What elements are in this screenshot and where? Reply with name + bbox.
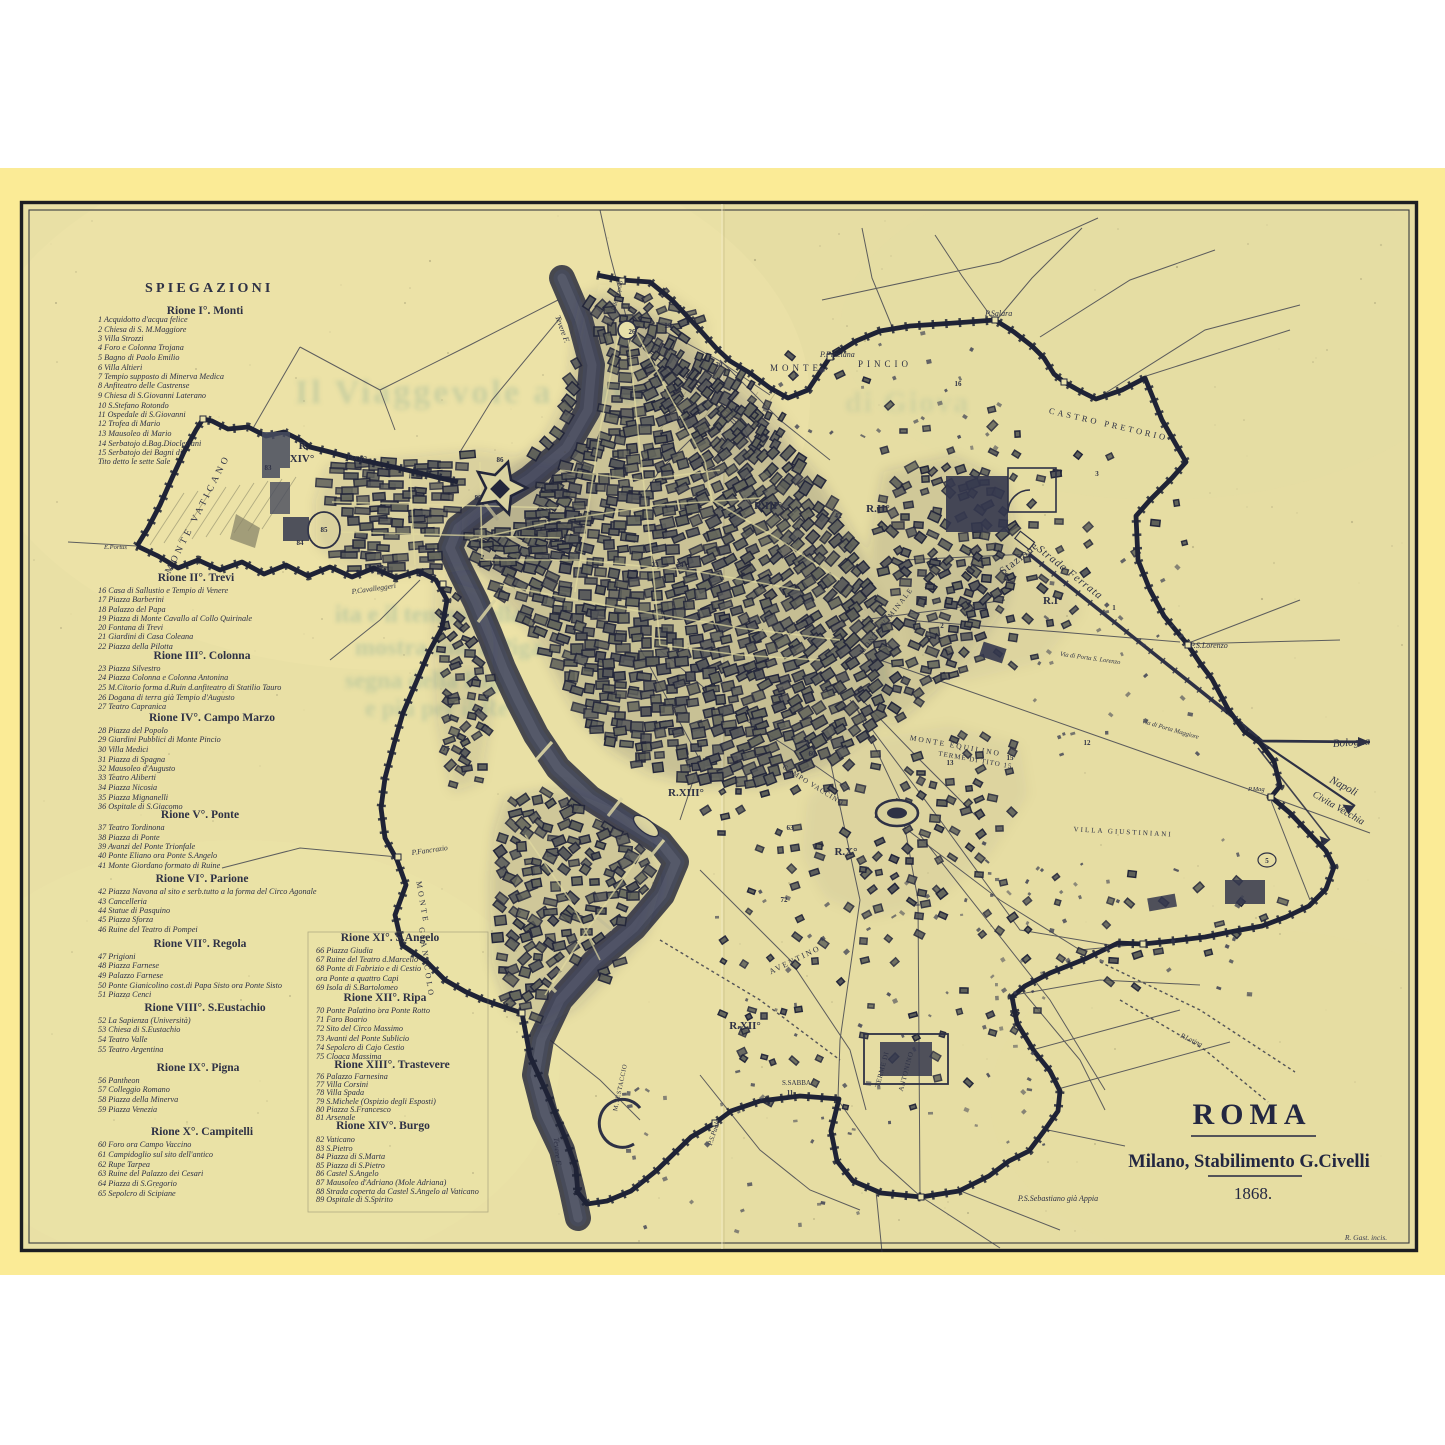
svg-text:41 Monte Giordano formato di R: 41 Monte Giordano formato di Ruine (98, 861, 221, 870)
svg-text:65 Sepolcro di Scipiane: 65 Sepolcro di Scipiane (98, 1189, 176, 1198)
svg-text:50 Ponte Gianicolino cost.di P: 50 Ponte Gianicolino cost.di Papa Sisto … (98, 981, 282, 990)
svg-text:13 Mausoleo di Mario: 13 Mausoleo di Mario (98, 429, 171, 438)
svg-text:84: 84 (297, 539, 305, 547)
svg-text:E.Portus: E.Portus (103, 544, 127, 551)
svg-text:48 Piazza Farnese: 48 Piazza Farnese (98, 961, 159, 970)
svg-text:23 Piazza Silvestro: 23 Piazza Silvestro (98, 664, 160, 673)
svg-text:4 Foro e Colonna Trojana: 4 Foro e Colonna Trojana (98, 343, 184, 352)
svg-text:38 Piazza di Ponte: 38 Piazza di Ponte (97, 833, 160, 842)
svg-text:12: 12 (1084, 739, 1092, 747)
svg-text:37 Teatro Tordinona: 37 Teatro Tordinona (97, 823, 165, 832)
svg-text:87 Mausoleo d'Adriano (Mole Ad: 87 Mausoleo d'Adriano (Mole Adriana) (316, 1178, 447, 1187)
svg-text:61 Campidoglio sul sito dell'a: 61 Campidoglio sul sito dell'antico (98, 1150, 213, 1159)
svg-text:78 Villa Spada: 78 Villa Spada (316, 1088, 364, 1097)
svg-text:88: 88 (475, 494, 483, 502)
svg-text:42 Piazza Navona al sito e ser: 42 Piazza Navona al sito e serb.tutto a … (98, 887, 317, 896)
svg-text:Borgo: Borgo (347, 453, 367, 462)
svg-text:85: 85 (321, 526, 329, 534)
svg-text:86: 86 (497, 456, 505, 464)
svg-text:45 Piazza Sforza: 45 Piazza Sforza (98, 915, 153, 924)
svg-text:P.S.Lorenzo: P.S.Lorenzo (1189, 641, 1228, 650)
svg-text:2: 2 (940, 622, 944, 630)
svg-text:31 Piazza di Spagna: 31 Piazza di Spagna (97, 755, 165, 764)
svg-text:25 M.Citorio forma d.Ruin d.an: 25 M.Citorio forma d.Ruin d.anfiteatro d… (98, 683, 281, 692)
svg-text:Rione IX°. Pigna: Rione IX°. Pigna (157, 1062, 240, 1074)
svg-text:MONTE: MONTE (770, 363, 822, 373)
svg-text:57 Colleggio Romano: 57 Colleggio Romano (98, 1085, 170, 1094)
svg-text:Rione VII°. Regola: Rione VII°. Regola (154, 938, 247, 950)
svg-text:63: 63 (787, 824, 795, 832)
svg-text:2 Chiesa di S. M.Maggiore: 2 Chiesa di S. M.Maggiore (98, 325, 187, 334)
svg-text:R.I°: R.I° (1043, 595, 1062, 607)
svg-text:26 Dogana di terra già Tempio: 26 Dogana di terra già Tempio d'Augusto (98, 693, 235, 702)
svg-text:Rione II°. Trevi: Rione II°. Trevi (158, 572, 235, 584)
svg-text:89 Ospitale di S.Spirito: 89 Ospitale di S.Spirito (316, 1195, 393, 1204)
svg-text:43 Cancelleria: 43 Cancelleria (98, 897, 147, 906)
svg-text:69 Isola di S.Bartolomeo: 69 Isola di S.Bartolomeo (316, 983, 398, 992)
svg-text:73 Avanti del Ponte Sublicio: 73 Avanti del Ponte Sublicio (316, 1034, 409, 1043)
svg-text:39 Avanzi del Ponte Trionfale: 39 Avanzi del Ponte Trionfale (97, 842, 196, 851)
svg-text:82 Vaticano: 82 Vaticano (316, 1135, 355, 1144)
svg-text:33 Teatro Aliberti: 33 Teatro Aliberti (97, 773, 157, 782)
svg-text:PINCIO: PINCIO (858, 359, 912, 369)
svg-text:35 Piazza Mignanelli: 35 Piazza Mignanelli (97, 793, 169, 802)
svg-text:28 Piazza del Popolo: 28 Piazza del Popolo (98, 726, 168, 735)
svg-text:S.SABBA: S.SABBA (782, 1079, 811, 1087)
svg-text:24: 24 (677, 561, 685, 569)
svg-text:59 Piazza Venezia: 59 Piazza Venezia (98, 1105, 157, 1114)
svg-text:60 Foro ora Campo Vaccino: 60 Foro ora Campo Vaccino (98, 1140, 191, 1149)
svg-text:Rione III°. Colonna: Rione III°. Colonna (154, 650, 251, 662)
svg-text:13: 13 (947, 759, 955, 767)
svg-text:Rione XII°. Ripa: Rione XII°. Ripa (344, 992, 427, 1004)
svg-text:Tito detto le sette Sale: Tito detto le sette Sale (98, 457, 171, 466)
svg-text:26: 26 (629, 328, 637, 336)
svg-text:29 Giardini Pubblici di Monte: 29 Giardini Pubblici di Monte Pincio (98, 735, 221, 744)
svg-text:15: 15 (1007, 754, 1015, 762)
svg-text:70 Ponte Palatino ora Ponte Ro: 70 Ponte Palatino ora Ponte Rotto (316, 1006, 430, 1015)
svg-text:30: 30 (716, 361, 724, 369)
svg-text:Rione XI°. S.Angelo: Rione XI°. S.Angelo (341, 932, 440, 944)
svg-text:1: 1 (1112, 604, 1116, 612)
svg-text:58 Piazza della Minerva: 58 Piazza della Minerva (98, 1095, 178, 1104)
svg-text:3 Villa Strozzi: 3 Villa Strozzi (97, 334, 144, 343)
svg-text:1 Acquidotto d'acqua felice: 1 Acquidotto d'acqua felice (98, 315, 188, 324)
svg-text:XIV°: XIV° (290, 453, 315, 465)
svg-text:16 Casa di Sallustio e Tempio: 16 Casa di Sallustio e Tempio di Venere (98, 586, 229, 595)
svg-text:21 Giardini di Casa Coleana: 21 Giardini di Casa Coleana (98, 632, 193, 641)
svg-text:8 Anfiteatro delle Castrense: 8 Anfiteatro delle Castrense (98, 381, 190, 390)
svg-text:24 Piazza Colonna e Colonna An: 24 Piazza Colonna e Colonna Antonina (98, 673, 228, 682)
svg-text:64 Piazza di S.Gregorio: 64 Piazza di S.Gregorio (98, 1179, 177, 1188)
svg-text:83: 83 (265, 464, 273, 472)
svg-text:60: 60 (809, 750, 817, 758)
svg-text:46 Ruine del Teatro di Pompei: 46 Ruine del Teatro di Pompei (98, 925, 198, 934)
svg-text:Rione VI°. Parione: Rione VI°. Parione (156, 873, 249, 885)
svg-text:5: 5 (1265, 857, 1269, 865)
svg-text:P.Salara: P.Salara (984, 309, 1012, 318)
svg-text:11 Ospedale di S.Giovanni: 11 Ospedale di S.Giovanni (98, 410, 186, 419)
svg-text:19 Piazza di Monte Cavallo al: 19 Piazza di Monte Cavallo al Collo Quir… (98, 614, 252, 623)
svg-text:16: 16 (955, 380, 963, 388)
svg-text:5 Bagno di Paolo Emilio: 5 Bagno di Paolo Emilio (98, 353, 179, 362)
svg-text:29: 29 (665, 322, 673, 330)
svg-text:Rione VIII°. S.Eustachio: Rione VIII°. S.Eustachio (144, 1002, 266, 1014)
svg-text:54 Teatro Valle: 54 Teatro Valle (98, 1035, 148, 1044)
svg-text:9 Chiesa di S.Giovanni Lateran: 9 Chiesa di S.Giovanni Laterano (98, 391, 206, 400)
svg-text:56 Pantheon: 56 Pantheon (98, 1076, 140, 1085)
svg-text:P.Mag: P.Mag (1247, 786, 1265, 793)
svg-text:52 La Sapienza (Università): 52 La Sapienza (Università) (98, 1016, 191, 1025)
svg-text:10 S.Stefano Rotond: 10 S.Stefano Rotondo (98, 401, 169, 410)
svg-text:57: 57 (377, 564, 385, 572)
svg-text:63 Ruine del Palazzo dei Cesar: 63 Ruine del Palazzo dei Cesari (98, 1169, 204, 1178)
svg-text:34 Piazza Nicosia: 34 Piazza Nicosia (97, 783, 157, 792)
svg-text:P.S.Sebastiano già Appia: P.S.Sebastiano già Appia (1017, 1194, 1098, 1203)
svg-text:SPIEGAZIONI: SPIEGAZIONI (145, 281, 274, 296)
svg-text:6 Villa Altieri: 6 Villa Altieri (98, 363, 143, 372)
svg-text:Milano, Stabilimento G.Civelli: Milano, Stabilimento G.Civelli (1128, 1152, 1370, 1172)
svg-text:62 Rupe Tarpea: 62 Rupe Tarpea (98, 1160, 150, 1169)
svg-text:R.III°: R.III° (754, 500, 782, 512)
svg-text:23: 23 (652, 561, 660, 569)
svg-text:R.XII°: R.XII° (729, 1020, 761, 1032)
svg-text:77: 77 (443, 745, 451, 753)
svg-text:44 Statue di Pasquino: 44 Statue di Pasquino (98, 906, 170, 915)
svg-text:15 Serbatojo dei Bagni di: 15 Serbatojo dei Bagni di (98, 448, 183, 457)
svg-text:Rione XIV°. Burgo: Rione XIV°. Burgo (336, 1120, 430, 1132)
svg-text:Rione V°. Ponte: Rione V°. Ponte (161, 809, 239, 821)
svg-text:27 Teatro Capranica: 27 Teatro Capranica (98, 702, 166, 711)
svg-text:R.: R. (299, 440, 310, 452)
svg-text:68 Ponte di Fabrizio e di Cest: 68 Ponte di Fabrizio e di Cestio (316, 964, 421, 973)
svg-text:7 Tempio supposto di Minerva M: 7 Tempio supposto di Minerva Medica (98, 372, 224, 381)
svg-text:66 Piazza Giudia: 66 Piazza Giudia (316, 946, 373, 955)
svg-text:30 Villa Medici: 30 Villa Medici (97, 745, 149, 754)
svg-text:1868.: 1868. (1234, 1184, 1272, 1203)
svg-text:3: 3 (1095, 470, 1099, 478)
svg-text:32 Mausoleo d'Augusto: 32 Mausoleo d'Augusto (97, 764, 175, 773)
svg-text:Rione XIII°. Trastevere: Rione XIII°. Trastevere (334, 1059, 449, 1071)
svg-text:ora Ponte a quattro Capi: ora Ponte a quattro Capi (316, 974, 399, 983)
svg-text:55 Teatro Argentina: 55 Teatro Argentina (98, 1045, 163, 1054)
svg-text:ROMA: ROMA (1193, 1098, 1312, 1131)
svg-text:14 Serbatojo d.Bag.Diocleziani: 14 Serbatojo d.Bag.Diocleziani (98, 439, 202, 448)
svg-text:R.XIII°: R.XIII° (668, 787, 704, 799)
svg-text:40 Ponte Eliano ora Ponte S.An: 40 Ponte Eliano ora Ponte S.Angelo (98, 851, 217, 860)
svg-text:11: 11 (787, 1089, 794, 1097)
svg-text:Rione IV°. Campo Marzo: Rione IV°. Campo Marzo (149, 712, 275, 724)
svg-text:R.II°: R.II° (866, 503, 890, 515)
svg-text:74 Sepolcro di Cajo Cestio: 74 Sepolcro di Cajo Cestio (316, 1043, 404, 1052)
svg-text:42: 42 (835, 512, 843, 520)
svg-text:R. Gast. incis.: R. Gast. incis. (1344, 1233, 1387, 1242)
svg-text:53 Chiesa di S.Eustachio: 53 Chiesa di S.Eustachio (98, 1025, 180, 1034)
svg-text:51 Piazza Cenci: 51 Piazza Cenci (98, 990, 152, 999)
svg-text:49 Palazzo Farnese: 49 Palazzo Farnese (98, 971, 163, 980)
svg-text:20 Fontana di Trevi: 20 Fontana di Trevi (98, 623, 164, 632)
svg-text:67 Ruine del Teatro d.Marcello: 67 Ruine del Teatro d.Marcello (316, 955, 418, 964)
svg-text:72 Sito del Circo Massimo: 72 Sito del Circo Massimo (316, 1024, 403, 1033)
svg-text:71 Faro Boario: 71 Faro Boario (316, 1015, 367, 1024)
svg-text:17 Piazza Barberini: 17 Piazza Barberini (98, 595, 165, 604)
svg-text:P.Pinciana: P.Pinciana (819, 350, 855, 359)
svg-text:R.X°: R.X° (834, 846, 857, 858)
svg-text:47 Prigioni: 47 Prigioni (98, 952, 136, 961)
svg-text:18 Palazzo del Papa: 18 Palazzo del Papa (98, 605, 166, 614)
svg-text:Rione X°. Campitelli: Rione X°. Campitelli (151, 1126, 254, 1138)
svg-text:di Giova: di Giova (845, 386, 970, 419)
svg-text:12 Trofea di Mario: 12 Trofea di Mario (98, 419, 160, 428)
